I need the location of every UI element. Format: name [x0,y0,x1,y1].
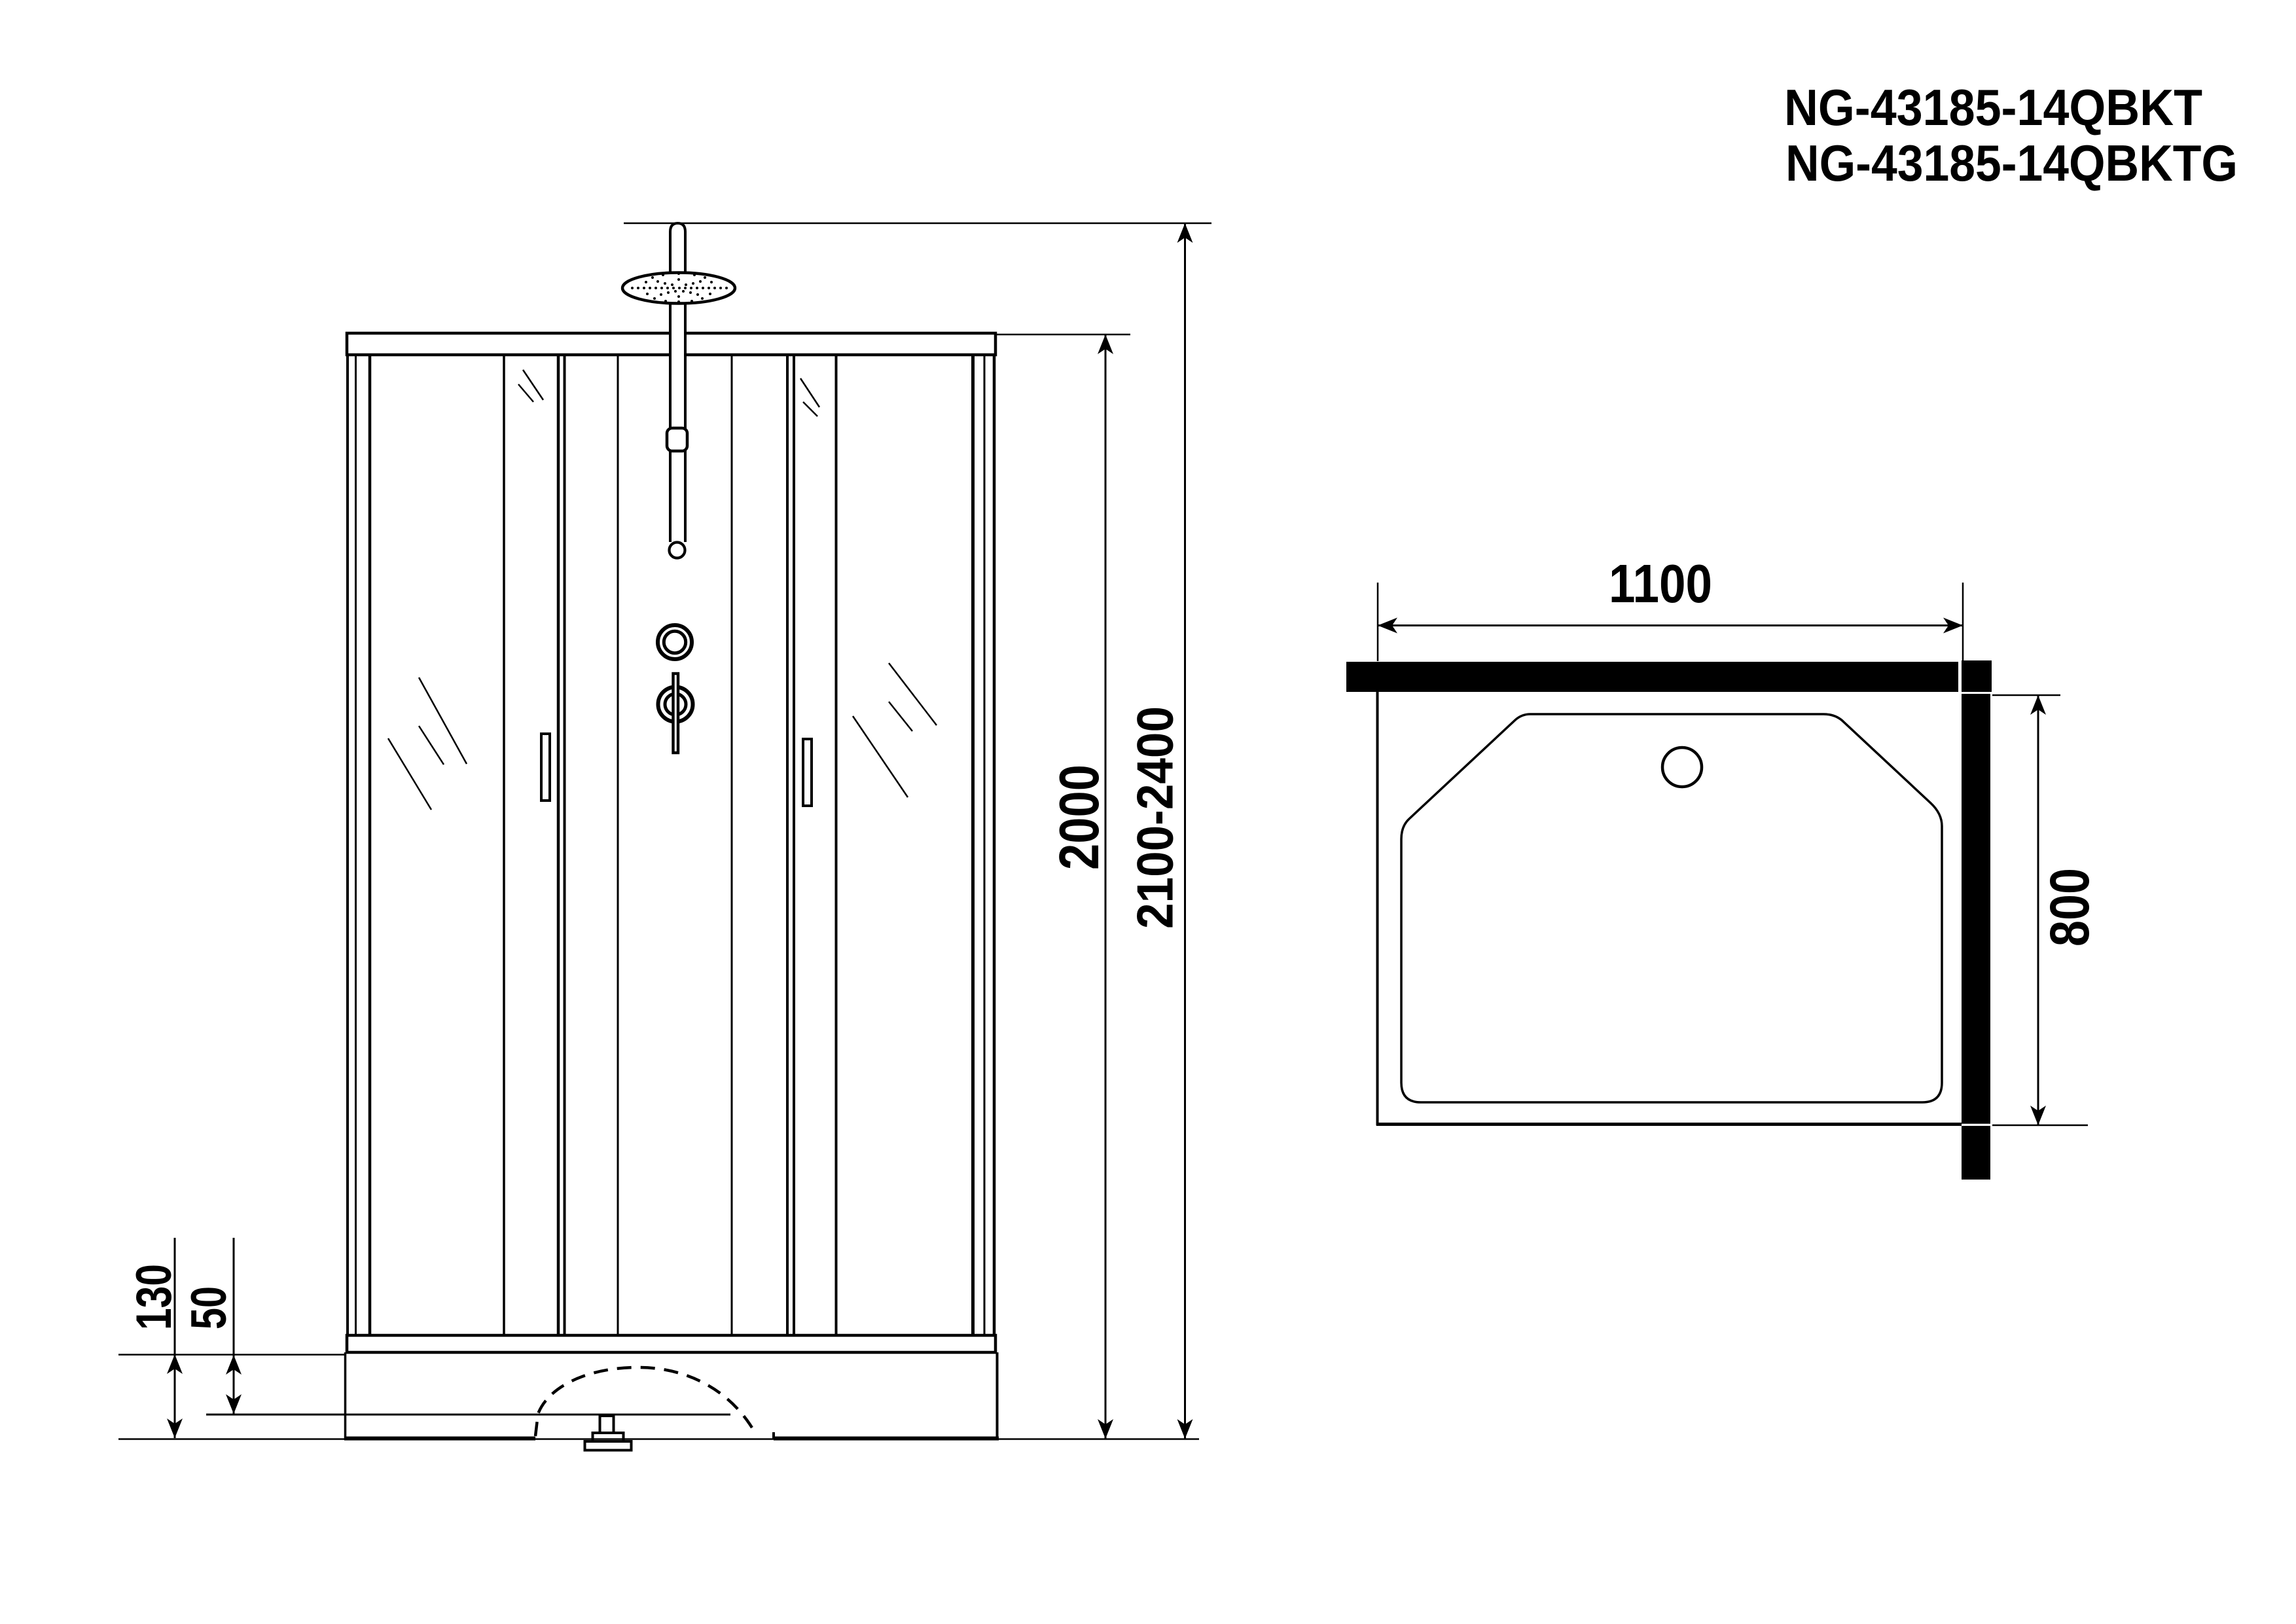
svg-text:130: 130 [126,1264,182,1330]
svg-text:2100-2400: 2100-2400 [1126,706,1184,929]
svg-text:50: 50 [181,1286,237,1329]
svg-text:1100: 1100 [1609,553,1712,614]
svg-text:2000: 2000 [1049,765,1111,870]
svg-text:NG-43185-14QBKTG: NG-43185-14QBKTG [1785,134,2238,192]
svg-text:800: 800 [2039,868,2100,947]
svg-text:NG-43185-14QBKT: NG-43185-14QBKT [1784,79,2202,136]
